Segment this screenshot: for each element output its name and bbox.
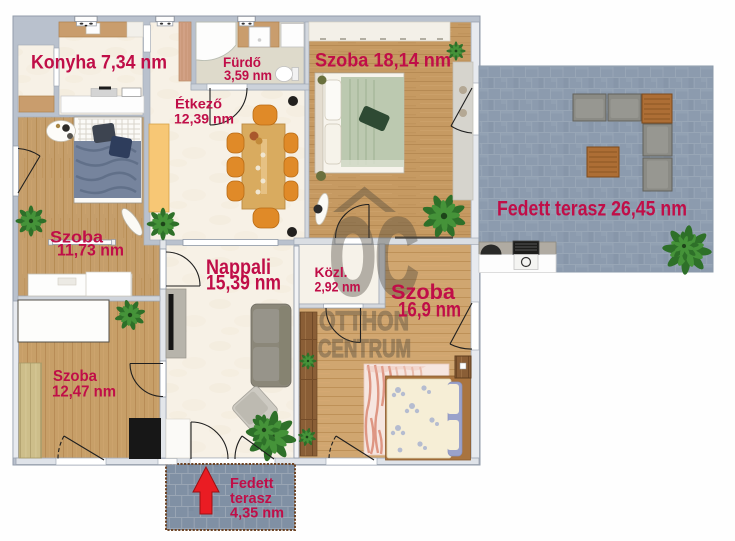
- svg-text:11,73 nm: 11,73 nm: [57, 241, 124, 260]
- svg-text:Szoba: Szoba: [53, 368, 97, 385]
- svg-text:4,35 nm: 4,35 nm: [230, 506, 284, 522]
- svg-text:3,59 nm: 3,59 nm: [224, 68, 272, 83]
- svg-text:Fedett: Fedett: [230, 476, 274, 492]
- svg-text:Szoba 18,14 nm: Szoba 18,14 nm: [315, 50, 451, 71]
- svg-text:CENTRUM: CENTRUM: [318, 335, 411, 363]
- svg-text:OTTHON: OTTHON: [319, 306, 409, 336]
- svg-text:2,92 nm: 2,92 nm: [315, 279, 361, 295]
- svg-text:Konyha 7,34 nm: Konyha 7,34 nm: [31, 53, 167, 74]
- svg-text:16,9 nm: 16,9 nm: [398, 299, 461, 322]
- svg-text:12,39 nm: 12,39 nm: [174, 111, 234, 126]
- svg-text:12,47 nm: 12,47 nm: [52, 384, 116, 401]
- svg-text:15,39 nm: 15,39 nm: [206, 272, 281, 295]
- svg-text:Étkező: Étkező: [175, 97, 222, 112]
- svg-text:Fedett terasz 26,45 nm: Fedett terasz 26,45 nm: [497, 198, 687, 221]
